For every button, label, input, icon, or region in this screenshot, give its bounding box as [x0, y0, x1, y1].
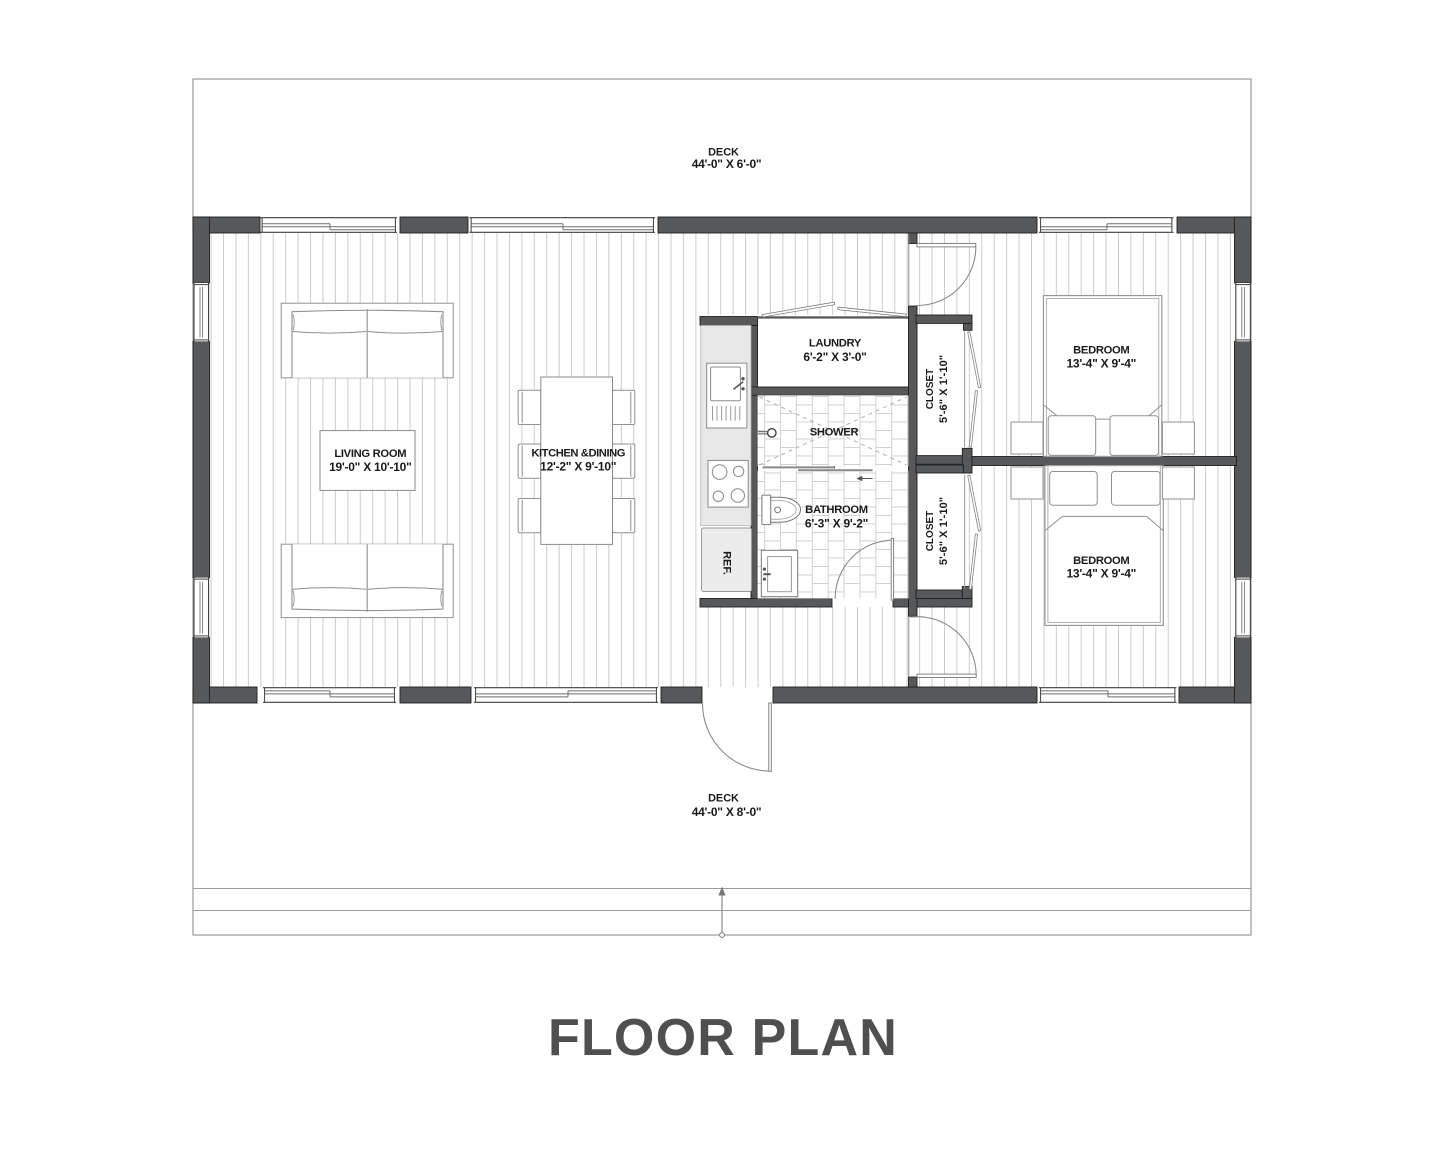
- svg-text:REF.: REF.: [721, 551, 733, 575]
- svg-text:SHOWER: SHOWER: [810, 426, 859, 438]
- svg-text:13'-4" X 9'-4": 13'-4" X 9'-4": [1066, 566, 1136, 580]
- svg-text:BATHROOM: BATHROOM: [805, 504, 868, 516]
- svg-text:5'-6" X 1'-10": 5'-6" X 1'-10": [938, 355, 950, 423]
- svg-text:BEDROOM: BEDROOM: [1073, 555, 1129, 567]
- svg-text:DECK: DECK: [708, 792, 739, 804]
- svg-text:CLOSET: CLOSET: [925, 511, 936, 552]
- svg-text:44'-0" X 8'-0": 44'-0" X 8'-0": [692, 805, 762, 819]
- svg-text:5'-6" X 1'-10": 5'-6" X 1'-10": [938, 497, 950, 565]
- svg-text:12'-2" X 9'-10": 12'-2" X 9'-10": [540, 460, 616, 474]
- svg-text:LAUNDRY: LAUNDRY: [809, 338, 862, 350]
- svg-text:KITCHEN &DINING: KITCHEN &DINING: [531, 447, 625, 459]
- svg-text:44'-0" X 6'-0": 44'-0" X 6'-0": [692, 157, 762, 171]
- svg-text:13'-4" X 9'-4": 13'-4" X 9'-4": [1066, 356, 1136, 370]
- svg-text:6'-3" X 9'-2": 6'-3" X 9'-2": [805, 516, 868, 530]
- svg-text:BEDROOM: BEDROOM: [1073, 345, 1129, 357]
- svg-text:LIVING ROOM: LIVING ROOM: [334, 448, 406, 460]
- svg-text:19'-0" X 10'-10": 19'-0" X 10'-10": [329, 460, 411, 474]
- svg-text:6'-2" X 3'-0": 6'-2" X 3'-0": [803, 350, 866, 364]
- svg-text:CLOSET: CLOSET: [925, 369, 936, 410]
- svg-text:FLOOR PLAN: FLOOR PLAN: [548, 1009, 898, 1067]
